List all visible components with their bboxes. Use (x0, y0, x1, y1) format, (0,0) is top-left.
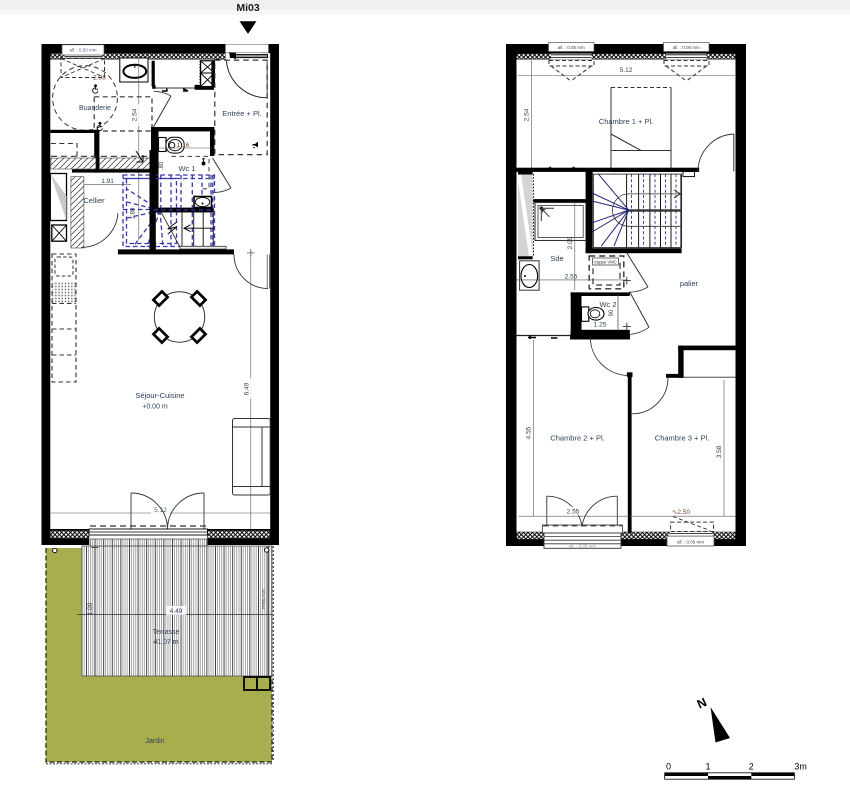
svg-text:2.09: 2.09 (567, 236, 574, 249)
svg-text:trappe VMC: trappe VMC (594, 260, 616, 265)
svg-text:all. : 0.05 mm: all. : 0.05 mm (673, 45, 700, 50)
svg-text:1: 1 (705, 762, 710, 772)
svg-text:6.49: 6.49 (244, 382, 251, 395)
svg-text:Sde: Sde (550, 254, 563, 263)
svg-text:palier: palier (680, 279, 699, 288)
svg-text:Entrée + Pl.: Entrée + Pl. (222, 109, 261, 118)
svg-text:3m: 3m (794, 762, 807, 772)
svg-text:4.55: 4.55 (526, 426, 533, 439)
svg-text:∿2.50: ∿2.50 (672, 509, 690, 516)
svg-text:4.49: 4.49 (170, 608, 183, 615)
svg-text:2.54: 2.54 (524, 108, 531, 121)
svg-text:Wc 2: Wc 2 (599, 300, 616, 309)
svg-text:1.91: 1.91 (101, 178, 114, 185)
svg-text:Buanderie: Buanderie (79, 105, 111, 112)
svg-text:.80: .80 (159, 161, 165, 170)
svg-text:PARE-VUE: PARE-VUE (261, 589, 266, 609)
svg-text:2.54: 2.54 (132, 108, 139, 121)
svg-text:Chambre 2 + Pl.: Chambre 2 + Pl. (550, 434, 604, 443)
svg-text:0: 0 (666, 762, 671, 772)
svg-text:all. : 0.05 mm: all. : 0.05 mm (558, 45, 585, 50)
svg-text:Séjour-Cuisine: Séjour-Cuisine (135, 391, 184, 400)
svg-text:90: 90 (609, 309, 615, 316)
svg-text:+0.00 m: +0.00 m (142, 404, 168, 411)
svg-text:Cellier: Cellier (83, 196, 105, 205)
svg-text:5.12: 5.12 (620, 67, 633, 74)
svg-text:1.80: 1.80 (131, 207, 137, 219)
svg-text:Wc 1: Wc 1 (178, 164, 195, 173)
svg-text:Mi03: Mi03 (236, 2, 260, 14)
svg-text:all. : 0.05 mm: all. : 0.05 mm (677, 540, 704, 545)
svg-text:2.03: 2.03 (93, 75, 106, 82)
svg-text:Jardin: Jardin (145, 738, 164, 745)
svg-text:2: 2 (749, 762, 754, 772)
svg-text:Chambre 1 + Pl.: Chambre 1 + Pl. (599, 117, 653, 126)
svg-text:Terrasse: Terrasse (153, 629, 180, 636)
svg-text:1.16: 1.16 (177, 142, 190, 149)
svg-text:1.00: 1.00 (87, 602, 94, 615)
svg-text:all. : 0.05 mm: all. : 0.05 mm (569, 544, 596, 549)
svg-text:1.25: 1.25 (594, 322, 607, 329)
svg-text:Chambre 3 + Pl.: Chambre 3 + Pl. (655, 434, 709, 443)
svg-text:2.55: 2.55 (565, 274, 578, 281)
svg-text:all. : 0.50 mm: all. : 0.50 mm (69, 48, 96, 53)
svg-text:2.55: 2.55 (567, 509, 580, 516)
svg-text:3.58: 3.58 (716, 445, 723, 458)
svg-text:41.07 m: 41.07 m (153, 639, 178, 646)
